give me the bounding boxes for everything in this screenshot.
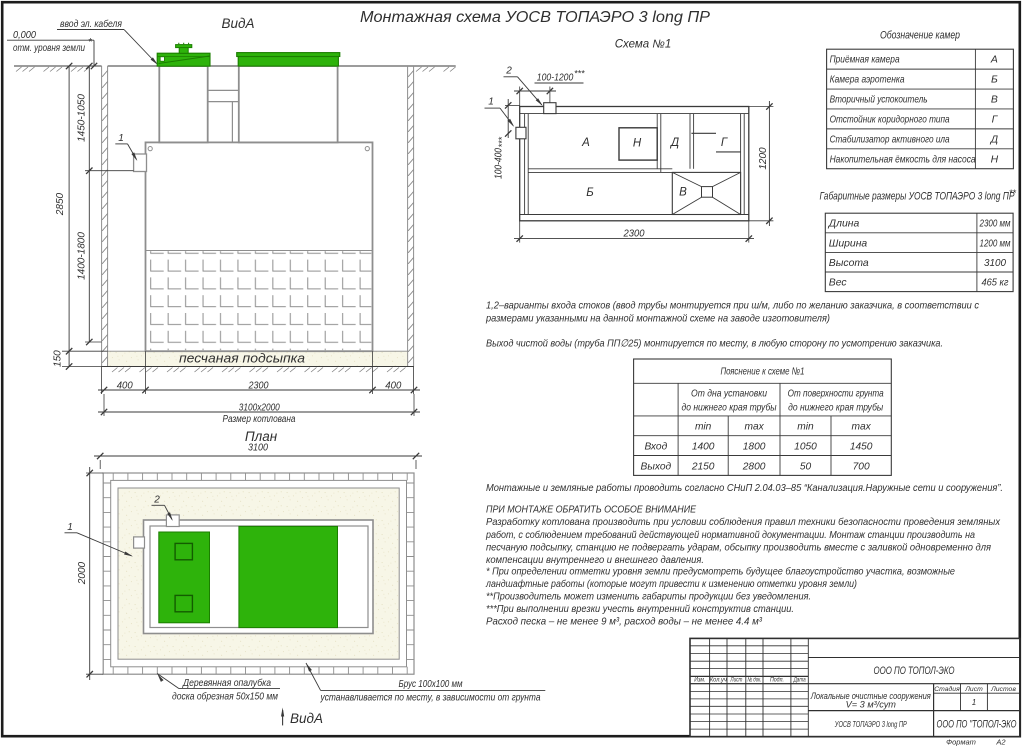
svg-text:3100х2000: 3100х2000	[239, 402, 280, 413]
svg-text:Выход чистой воды (труба ПП∅25: Выход чистой воды (труба ПП∅25) монтируе…	[486, 338, 943, 350]
svg-text:2300: 2300	[248, 381, 269, 392]
svg-text:V= 3 м³/сут: V= 3 м³/сут	[846, 699, 897, 709]
svg-text:***: ***	[497, 136, 507, 147]
svg-text:Брус 100х100 мм: Брус 100х100 мм	[399, 678, 463, 690]
svg-text:От дна установки: От дна установки	[691, 389, 767, 400]
svg-text:***При выполнении врезки учест: ***При выполнении врезки учесть внутренн…	[486, 604, 794, 615]
svg-text:Приёмная камера: Приёмная камера	[830, 55, 900, 66]
svg-text:Обозначение камер: Обозначение камер	[880, 30, 960, 42]
svg-text:доска обрезная 50х150 мм: доска обрезная 50х150 мм	[172, 691, 278, 703]
svg-text:Камера аэротенка: Камера аэротенка	[830, 75, 905, 86]
svg-text:**Производитель может изменить: **Производитель может изменить габариты …	[486, 590, 811, 602]
svg-text:А2: А2	[995, 738, 1006, 746]
svg-text:2: 2	[153, 495, 160, 506]
svg-text:Разработку котлована производи: Разработку котлована производить при усл…	[486, 516, 1001, 528]
svg-text:Лист: Лист	[730, 677, 743, 684]
svg-text:2850: 2850	[55, 192, 66, 216]
svg-text:Отстойник коридорного типа: Отстойник коридорного типа	[830, 114, 950, 125]
svg-text:ВидА: ВидА	[222, 16, 255, 31]
svg-text:ПРИ МОНТАЖЕ ОБРАТИТЬ ОСОБОЕ ВН: ПРИ МОНТАЖЕ ОБРАТИТЬ ОСОБОЕ ВНИМАНИЕ	[486, 505, 697, 516]
svg-text:Д: Д	[990, 134, 999, 145]
svg-text:Подп.: Подп.	[770, 677, 784, 684]
svg-text:2000: 2000	[77, 561, 88, 585]
svg-text:В: В	[991, 95, 998, 106]
svg-text:ВидА: ВидА	[290, 711, 323, 726]
svg-text:Пояснение к схеме №1: Пояснение к схеме №1	[720, 367, 804, 378]
svg-text:Н: Н	[633, 138, 642, 150]
svg-text:1200: 1200	[758, 147, 769, 170]
svg-text:2150: 2150	[691, 461, 715, 472]
svg-text:400: 400	[385, 381, 401, 392]
svg-text:В: В	[679, 187, 687, 199]
svg-text:Изм.: Изм.	[694, 677, 705, 684]
svg-text:100-400: 100-400	[494, 148, 505, 179]
svg-text:2: 2	[505, 66, 512, 77]
svg-text:до нижнего края трубы: до нижнего края трубы	[788, 402, 883, 414]
svg-text:Монтажные и земляные работы пр: Монтажные и земляные работы проводить со…	[486, 482, 1003, 494]
svg-text:2300: 2300	[623, 228, 645, 239]
svg-text:1050: 1050	[794, 442, 817, 453]
svg-text:3100: 3100	[248, 443, 268, 454]
svg-text:ООО ПО ТОПОЛ-ЭКО: ООО ПО ТОПОЛ-ЭКО	[874, 665, 955, 677]
svg-text:ландшафтные работы (которые мо: ландшафтные работы (которые могут привес…	[485, 578, 857, 590]
svg-text:песчаную подсыпку, станцию не: песчаную подсыпку, станцию не подвергать…	[486, 541, 991, 553]
svg-text:1: 1	[118, 133, 124, 144]
svg-text:Листов: Листов	[990, 686, 1016, 693]
svg-text:Кол.уч: Кол.уч	[710, 677, 728, 684]
svg-text:1450-1050: 1450-1050	[76, 94, 87, 142]
svg-text:* При определении отметки уров: * При определении отметки уровня земли п…	[486, 565, 955, 577]
svg-text:Стадия: Стадия	[934, 685, 960, 693]
svg-text:0,000: 0,000	[13, 29, 36, 41]
svg-text:Деревянная опалубка: Деревянная опалубка	[182, 677, 271, 689]
svg-text:***: ***	[574, 69, 585, 79]
svg-text:устанавливается по месту, в за: устанавливается по месту, в зависимости …	[320, 692, 541, 704]
svg-text:Н: Н	[991, 154, 999, 165]
svg-text:2300 мм: 2300 мм	[979, 219, 1011, 230]
svg-text:Стабилизатор активного ила: Стабилизатор активного ила	[830, 133, 950, 145]
svg-text:Лист: Лист	[964, 686, 983, 693]
svg-text:УОСВ ТОПАЭРО 3 long ПР: УОСВ ТОПАЭРО 3 long ПР	[834, 719, 907, 729]
svg-text:А: А	[990, 55, 998, 66]
svg-text:1450: 1450	[850, 442, 873, 453]
svg-text:150: 150	[53, 350, 64, 367]
svg-text:1: 1	[488, 97, 494, 108]
svg-text:размерами указанными на данной: размерами указанными на данной монтажной…	[485, 314, 830, 325]
svg-text:min: min	[797, 422, 814, 433]
svg-text:max: max	[744, 422, 764, 433]
svg-text:песчаная подсыпка: песчаная подсыпка	[179, 352, 305, 366]
svg-text:700: 700	[853, 461, 870, 472]
svg-text:ввод эл. кабеля: ввод эл. кабеля	[60, 18, 122, 30]
svg-text:Ширина: Ширина	[829, 238, 868, 249]
svg-text:**: **	[1009, 188, 1017, 198]
svg-text:1400: 1400	[692, 442, 715, 453]
svg-text:до нижнего края трубы: до нижнего края трубы	[682, 402, 777, 414]
svg-text:3100: 3100	[984, 258, 1006, 269]
svg-text:Вторичный успокоитель: Вторичный успокоитель	[830, 95, 928, 106]
svg-text:2800: 2800	[742, 461, 766, 472]
svg-text:100-1200: 100-1200	[537, 73, 574, 84]
svg-text:От поверхности грунта: От поверхности грунта	[788, 389, 884, 400]
svg-text:Монтажная схема УОСВ ТОПАЭРО 3: Монтажная схема УОСВ ТОПАЭРО 3 long ПР	[360, 9, 711, 26]
svg-text:Выход: Выход	[641, 461, 672, 472]
svg-text:1,2–варианты входа стоков (вв: 1,2–варианты входа стоков (ввод трубы мо…	[486, 300, 980, 312]
svg-text:max: max	[852, 422, 872, 433]
svg-text:Д: Д	[669, 137, 679, 149]
svg-text:1200 мм: 1200 мм	[980, 238, 1011, 249]
svg-text:Длина: Длина	[828, 219, 860, 230]
svg-text:А: А	[581, 137, 590, 149]
svg-text:1: 1	[972, 698, 976, 707]
svg-text:работ, с соблюдением требовани: работ, с соблюдением требований действую…	[485, 529, 975, 541]
svg-text:50: 50	[800, 461, 812, 472]
svg-text:Вес: Вес	[829, 278, 848, 289]
svg-text:Г: Г	[721, 137, 728, 149]
svg-text:Схема №1: Схема №1	[615, 39, 672, 51]
svg-text:Накопительная ёмкость для насо: Накопительная ёмкость для насоса	[830, 154, 976, 165]
svg-text:ООО ПО "ТОПОЛ-ЭКО: ООО ПО "ТОПОЛ-ЭКО	[937, 719, 1017, 731]
svg-text:1: 1	[67, 522, 73, 533]
svg-text:Вход: Вход	[644, 442, 667, 453]
svg-text:Расход песка – не менее 9 м³,: Расход песка – не менее 9 м³, расход вод…	[486, 617, 762, 628]
svg-text:1800: 1800	[743, 442, 766, 453]
svg-text:400: 400	[117, 381, 133, 392]
svg-text:Размер котлована: Размер котлована	[223, 414, 296, 425]
svg-text:Формат: Формат	[946, 738, 976, 746]
svg-text:Б: Б	[586, 187, 594, 199]
svg-text:компенсации внутреннего и внеш: компенсации внутреннего и внешнего давле…	[486, 555, 704, 566]
svg-text:1400-1800: 1400-1800	[76, 232, 87, 280]
svg-text:Б: Б	[991, 75, 998, 86]
svg-text:№ док.: № док.	[747, 677, 761, 684]
svg-text:Дата: Дата	[793, 677, 806, 684]
svg-text:Высота: Высота	[829, 258, 869, 269]
svg-text:Габаритные размеры УОСВ ТОПАЭ: Габаритные размеры УОСВ ТОПАЭРО 3 long П…	[820, 191, 1016, 203]
svg-text:465 кг: 465 кг	[982, 278, 1009, 289]
svg-text:отм. уровня земли: отм. уровня земли	[13, 42, 85, 54]
svg-text:min: min	[695, 422, 712, 433]
